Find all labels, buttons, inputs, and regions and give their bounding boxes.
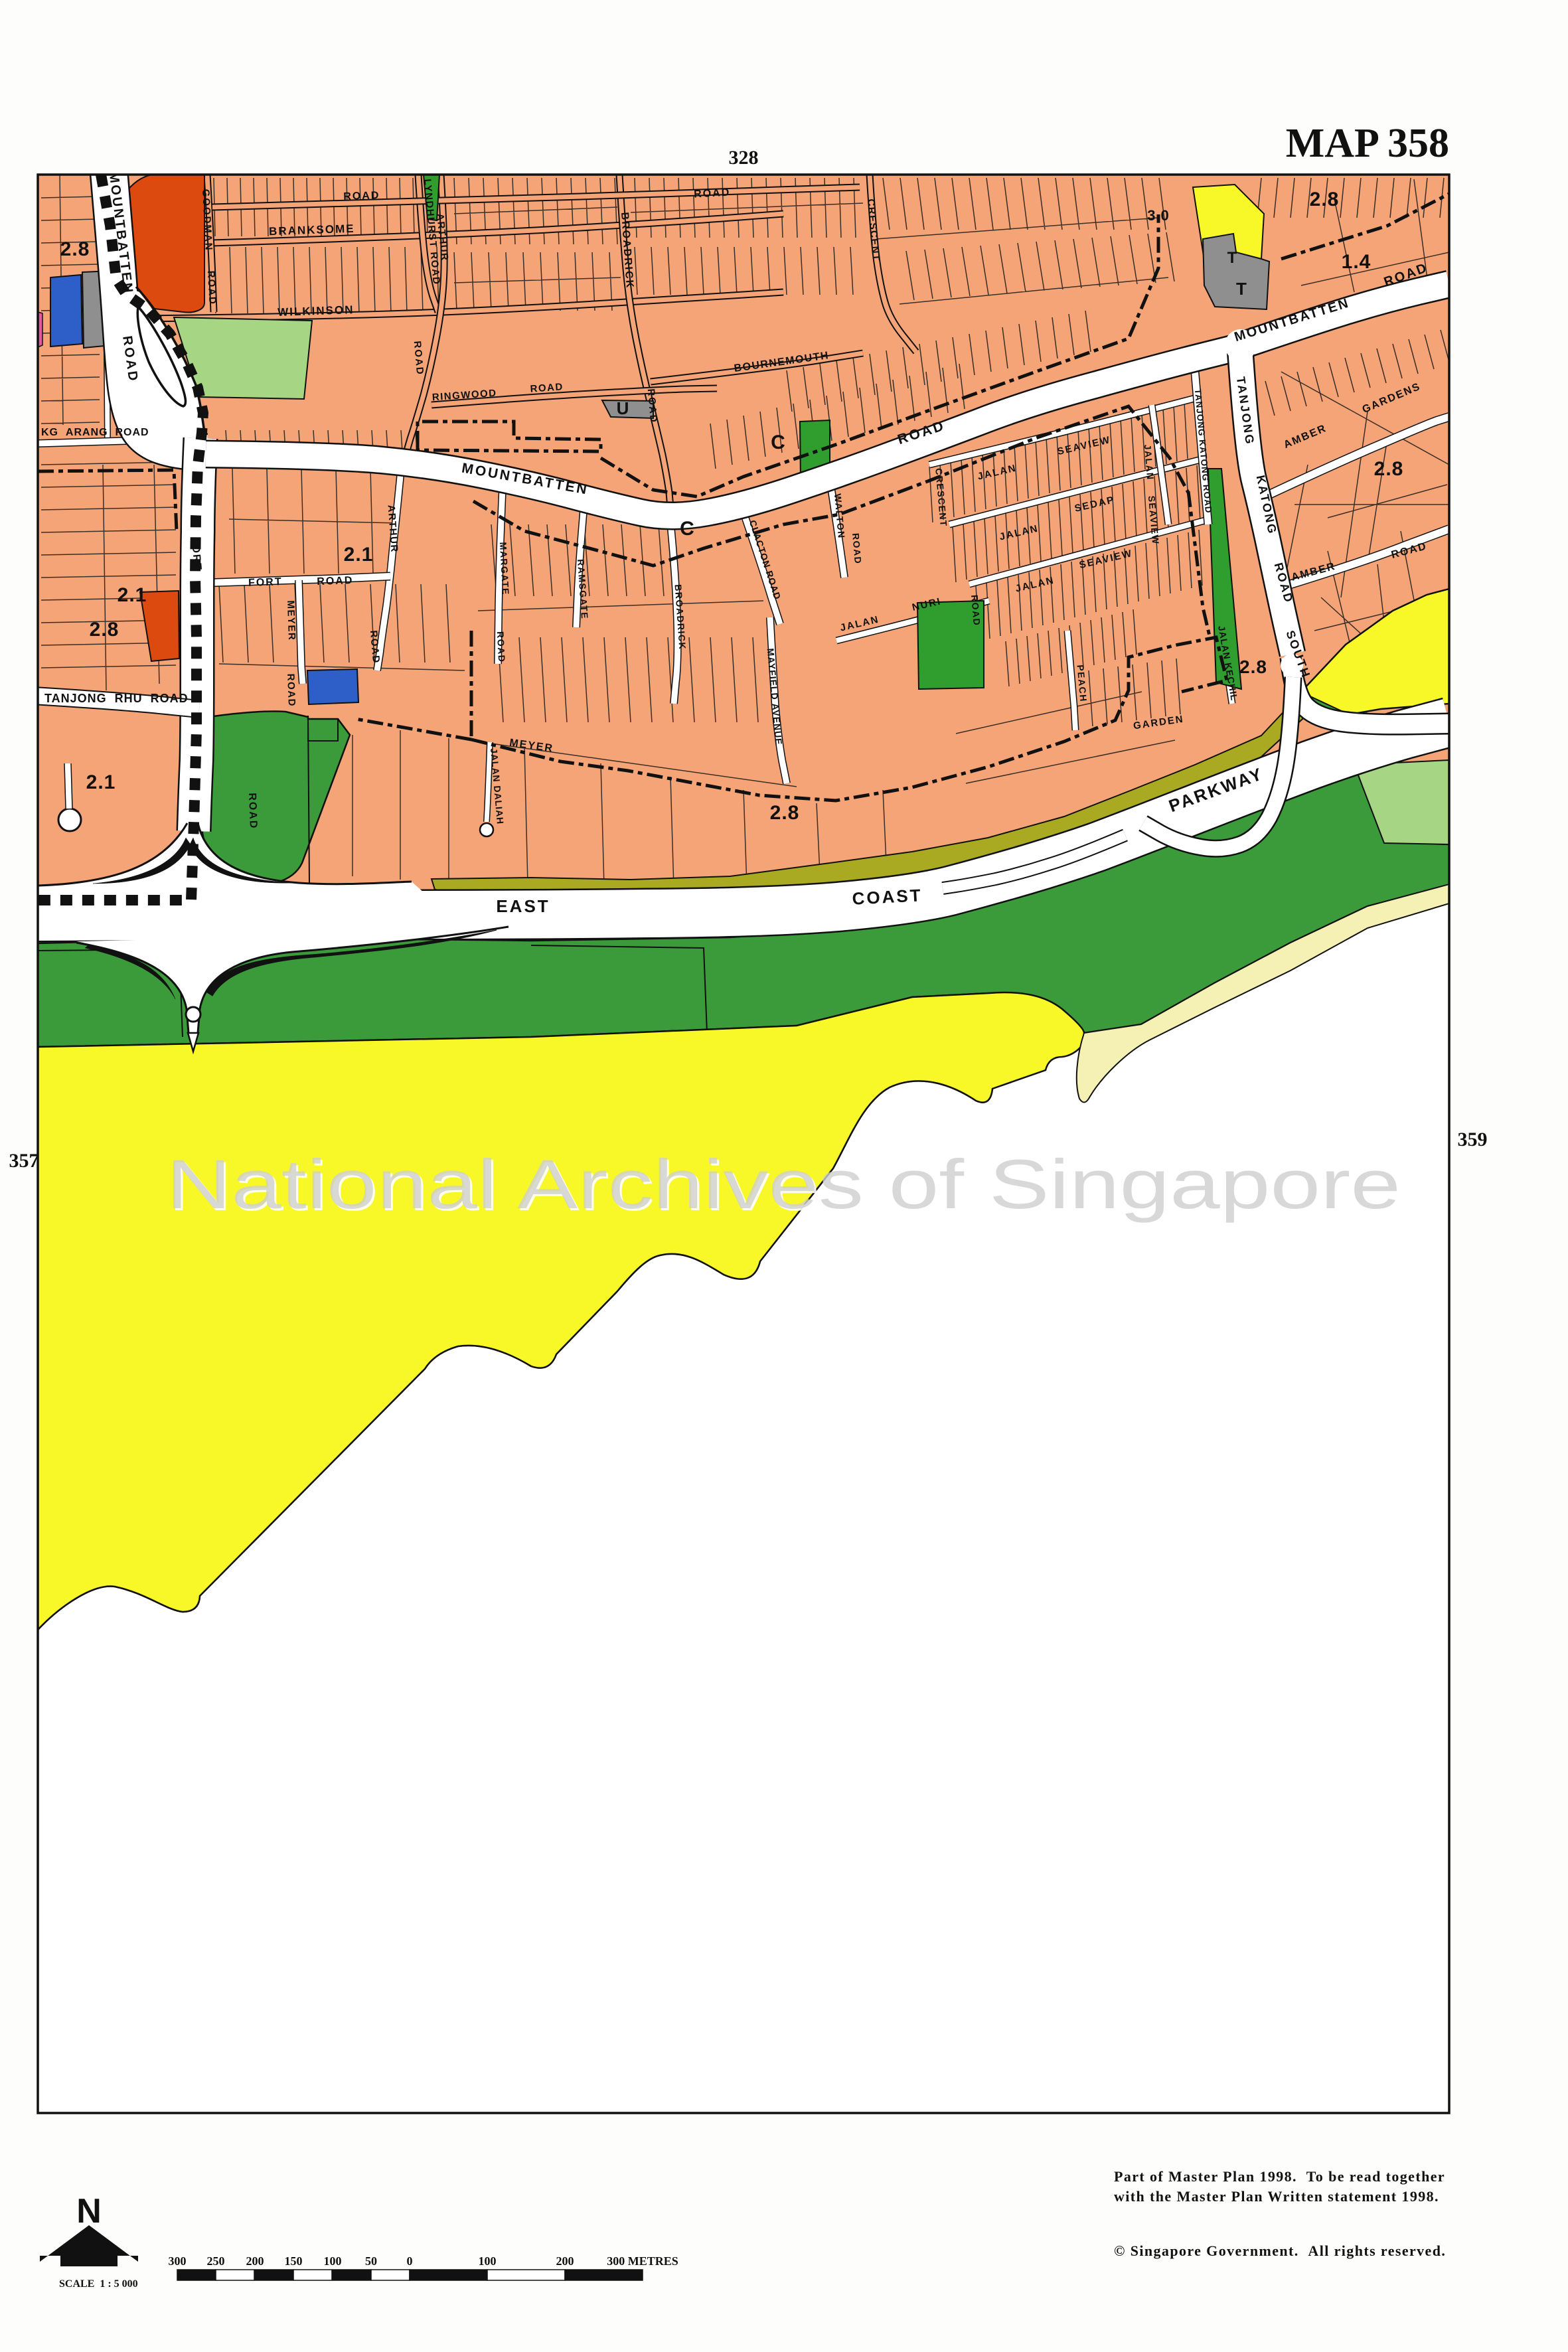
svg-text:SCALE 1 : 5 000: SCALE 1 : 5 000 — [59, 2278, 138, 2290]
svg-text:MEYER: MEYER — [285, 600, 297, 641]
svg-text:ROAD: ROAD — [285, 673, 297, 707]
svg-text:2.8: 2.8 — [1239, 657, 1267, 677]
svg-text:0: 0 — [407, 2254, 413, 2268]
svg-text:ROAD: ROAD — [530, 381, 564, 394]
svg-text:50: 50 — [365, 2254, 377, 2268]
svg-text:2.1: 2.1 — [118, 584, 147, 606]
svg-text:National Archives of Singapore: National Archives of Singapore — [166, 1146, 1401, 1223]
svg-text:TANJONG RHU ROAD: TANJONG RHU ROAD — [44, 692, 189, 705]
svg-text:300 METRES: 300 METRES — [607, 2254, 678, 2268]
svg-text:N: N — [76, 2192, 102, 2231]
svg-text:3.0: 3.0 — [1147, 207, 1170, 224]
svg-text:MAP 358: MAP 358 — [1286, 121, 1449, 166]
svg-text:100: 100 — [479, 2254, 497, 2268]
svg-text:2.8: 2.8 — [1310, 189, 1340, 210]
svg-text:WILKINSON: WILKINSON — [277, 303, 354, 319]
svg-text:KG ARANG ROAD: KG ARANG ROAD — [41, 427, 149, 438]
svg-text:357: 357 — [9, 1150, 39, 1172]
svg-text:2.8: 2.8 — [770, 802, 800, 824]
svg-text:C: C — [680, 518, 694, 540]
svg-text:ROAD: ROAD — [694, 187, 731, 200]
svg-text:359: 359 — [1458, 1129, 1488, 1150]
svg-text:T: T — [1236, 279, 1247, 299]
svg-text:EAST: EAST — [496, 896, 550, 916]
svg-text:150: 150 — [285, 2254, 303, 2268]
svg-text:200: 200 — [556, 2254, 574, 2268]
svg-text:ROAD: ROAD — [246, 793, 259, 830]
svg-text:T: T — [1227, 249, 1237, 267]
svg-text:2.8: 2.8 — [90, 619, 119, 641]
svg-text:2.8: 2.8 — [60, 238, 90, 260]
svg-text:ROAD: ROAD — [495, 631, 507, 663]
svg-text:328: 328 — [729, 147, 759, 169]
svg-text:1.4: 1.4 — [1342, 251, 1372, 273]
svg-text:100: 100 — [324, 2254, 342, 2268]
svg-text:with the Master Plan Written s: with the Master Plan Written statement 1… — [1114, 2188, 1439, 2205]
svg-text:© Singapore Government. All r: © Singapore Government. All rights reser… — [1114, 2242, 1446, 2259]
svg-text:250: 250 — [207, 2254, 225, 2268]
svg-text:2.1: 2.1 — [86, 771, 116, 793]
svg-text:2.8: 2.8 — [1374, 458, 1404, 480]
svg-text:Part of Master Plan 1998. To: Part of Master Plan 1998. To be read tog… — [1114, 2168, 1445, 2185]
svg-text:ROAD: ROAD — [205, 270, 218, 305]
svg-text:ROAD: ROAD — [317, 575, 354, 588]
svg-text:C: C — [771, 431, 785, 453]
svg-text:U: U — [617, 398, 629, 418]
svg-text:300: 300 — [169, 2254, 187, 2268]
svg-text:2.1: 2.1 — [344, 544, 374, 566]
svg-text:ROAD: ROAD — [343, 190, 380, 202]
svg-text:COAST: COAST — [852, 885, 923, 909]
svg-text:200: 200 — [246, 2254, 264, 2268]
svg-text:FORT: FORT — [248, 576, 283, 589]
